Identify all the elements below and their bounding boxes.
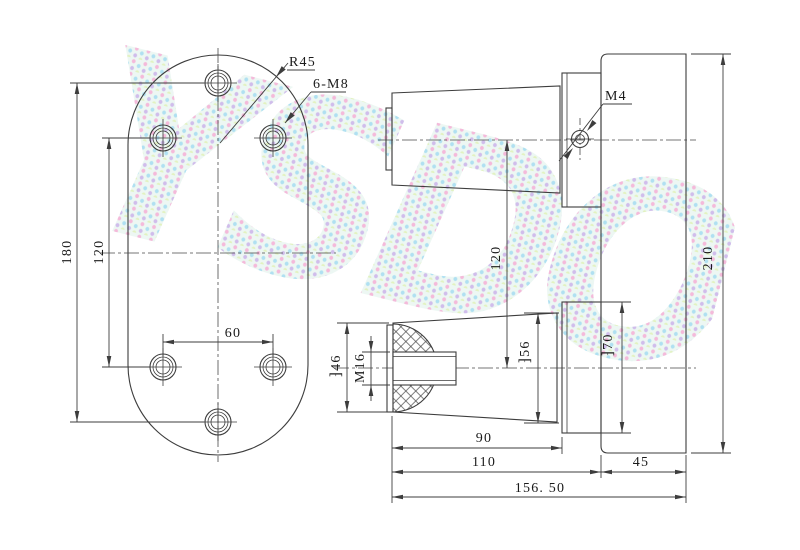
- dimension-label: 180: [60, 240, 75, 265]
- dim-180: 180: [60, 83, 204, 422]
- radius-label: R45: [289, 55, 316, 70]
- dim-210: 210: [691, 54, 731, 453]
- side-view: M4 ⁆46: [329, 54, 731, 503]
- bolt-hole: [199, 403, 237, 441]
- dim-156-50: 156. 50: [392, 481, 686, 497]
- dimension-label: 120: [92, 240, 107, 265]
- holes-label: 6-M8: [313, 77, 349, 92]
- dimension-label: 156. 50: [515, 481, 565, 496]
- dim-m16: M16: [353, 336, 390, 401]
- dim-120-side: 120: [489, 140, 507, 368]
- dim-45: 45: [601, 455, 686, 503]
- dimension-label: 120: [489, 246, 504, 271]
- dimension-label: 90: [476, 431, 492, 446]
- body-outline: [601, 54, 686, 453]
- dimension-label: 110: [472, 455, 496, 470]
- dimension-label: ⁆56: [518, 340, 533, 363]
- dim-120-front: 120: [92, 138, 150, 367]
- lower-boss: [387, 302, 601, 433]
- dimension-label: ⁆46: [329, 354, 344, 377]
- dimension-label: 45: [633, 455, 649, 470]
- dimension-label: ⁆70: [601, 333, 616, 356]
- holes-callout: 6-M8: [283, 77, 349, 125]
- m4-hole: M4: [559, 89, 632, 161]
- bolt-hole: [199, 64, 237, 102]
- dim-110: 110: [392, 455, 601, 478]
- m16-tapped-hole: [393, 352, 456, 385]
- front-view: 180 120 60 R45: [60, 48, 349, 462]
- dimension-label: 60: [225, 326, 241, 341]
- dim-d70: ⁆70: [566, 302, 631, 433]
- dimension-label: M16: [353, 353, 368, 383]
- dimension-label: 210: [701, 246, 716, 271]
- drawing-canvas: YSDO: [0, 0, 800, 550]
- engineering-drawing: 180 120 60 R45: [0, 0, 800, 550]
- thread-label: M4: [605, 89, 627, 104]
- bolt-hole: [254, 119, 292, 157]
